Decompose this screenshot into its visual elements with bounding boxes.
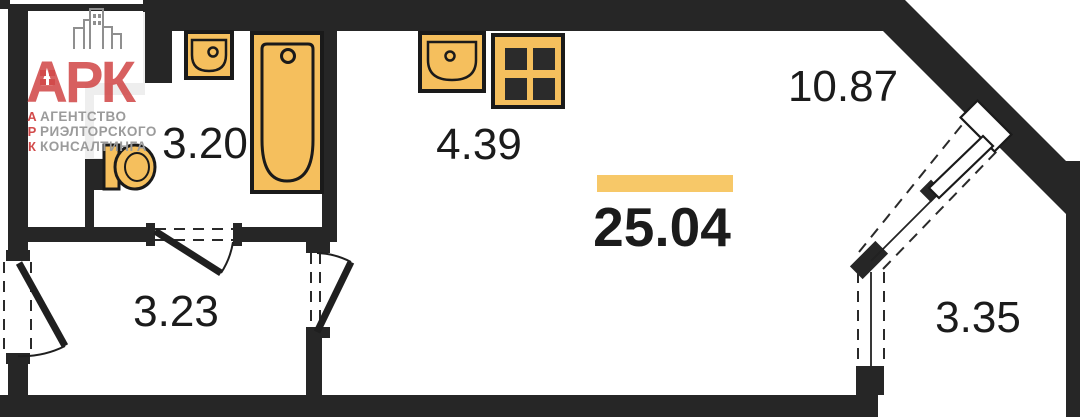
- total-area-highlight-bar: [597, 175, 733, 192]
- area-label-balcony: 3.35: [935, 293, 1021, 342]
- bath-door-jamb-right: [233, 223, 242, 246]
- room-door-leaf: [317, 262, 351, 332]
- bathroom-door-arc: [221, 242, 233, 273]
- wall-bath-west-upper: [143, 31, 172, 83]
- wall-bath-east: [322, 31, 337, 242]
- stove-burner: [505, 78, 527, 100]
- brand-vertical-letter: Р: [28, 124, 37, 139]
- stove-burner: [505, 48, 527, 70]
- wall-top-thin: [9, 4, 143, 11]
- balcony-diagonal-dash-right: [883, 149, 999, 269]
- wall-hall-north-left: [28, 227, 146, 242]
- agency-name-line: РИЭЛТОРСКОГО: [40, 124, 157, 139]
- floor-plan-page: 25.04 3.20 4.39 10.87 3.23 3.35 АРК А Р …: [0, 0, 1080, 417]
- entrance-jamb-top: [6, 250, 30, 261]
- balcony-diagonal-glazing-line: [871, 196, 936, 261]
- area-label-hallway: 3.23: [133, 287, 219, 336]
- wall-hall-east-lower: [306, 338, 322, 395]
- wall-bottom: [0, 395, 878, 417]
- stove-burner: [533, 48, 555, 70]
- bathroom-door-leaf: [155, 231, 221, 273]
- agency-name-line: АГЕНТСТВО: [40, 109, 126, 124]
- area-label-kitchen: 4.39: [436, 120, 522, 169]
- agency-name-line: КОНСАЛТИНГА: [40, 139, 147, 154]
- entrance-door-leaf: [19, 263, 65, 346]
- floor-plan: 25.04 3.20 4.39 10.87 3.23 3.35 АРК А Р …: [0, 0, 1080, 417]
- wall-left-upper: [8, 9, 28, 253]
- bath-door-jamb-left: [146, 223, 155, 246]
- balcony-door-leaf: [929, 136, 993, 198]
- wall-corner-topleft: [0, 0, 10, 9]
- wall-right: [1066, 161, 1080, 417]
- area-label-living-room: 10.87: [788, 62, 898, 111]
- room-door-jamb-top: [306, 242, 330, 253]
- wall-hall-north-right: [242, 227, 337, 242]
- total-area-label: 25.04: [593, 196, 731, 258]
- stove-burner: [533, 78, 555, 100]
- brand-vertical-letter: К: [28, 139, 36, 154]
- area-label-bathroom: 3.20: [162, 119, 248, 168]
- room-door-arc: [317, 253, 351, 262]
- wall-top-main: [143, 0, 888, 31]
- balcony-partition-top-block: [850, 241, 888, 279]
- balcony-partition-bottom-block: [856, 366, 884, 395]
- brand-vertical-letter: А: [27, 109, 37, 124]
- wall-left-stub: [8, 362, 28, 395]
